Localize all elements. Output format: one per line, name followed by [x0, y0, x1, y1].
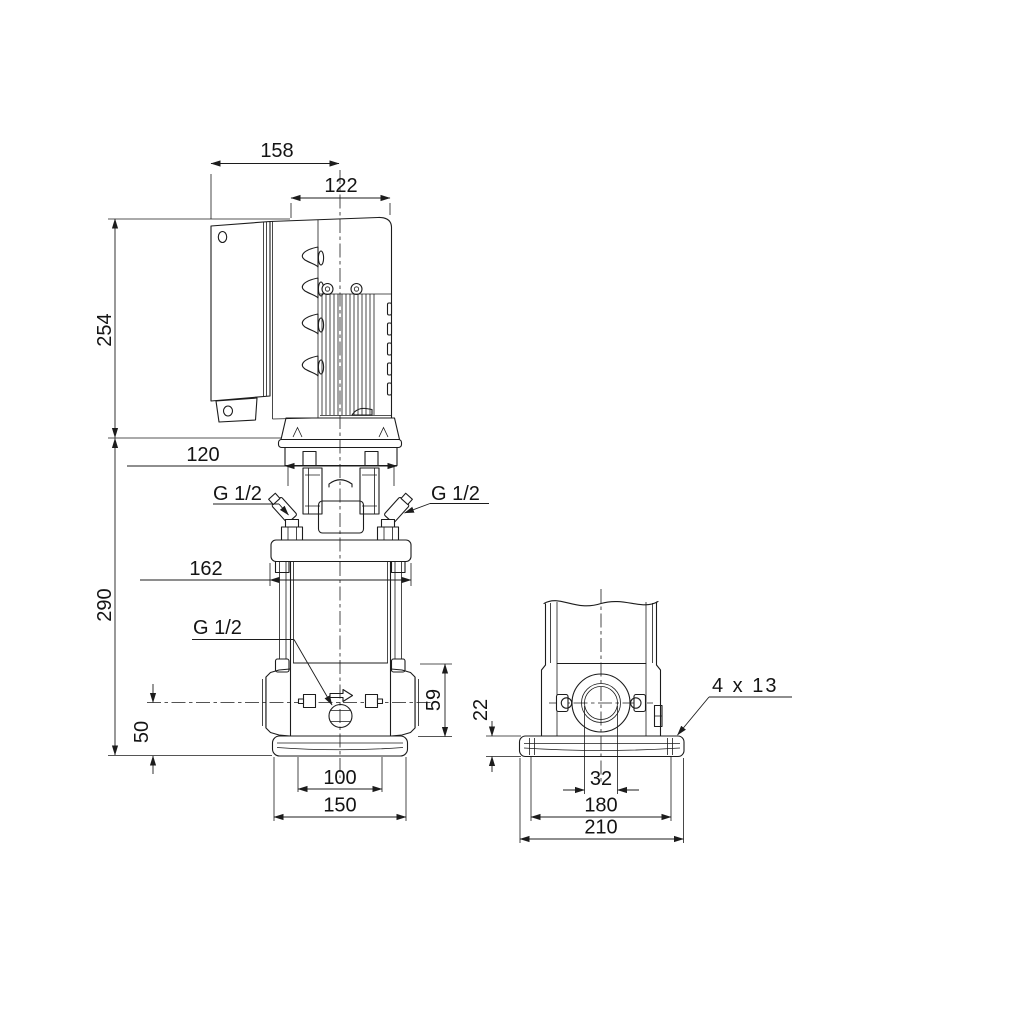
dim-120-label: 120 — [186, 444, 219, 466]
dim-22-label: 22 — [470, 699, 492, 721]
vent-right-label: G 1/2 — [431, 483, 480, 505]
side-base-plate — [520, 736, 685, 757]
dim-150-label: 150 — [323, 795, 356, 817]
pump-head-flange — [271, 540, 411, 562]
motor-stool — [285, 448, 397, 534]
coupling-guard-left — [303, 468, 322, 514]
control-box — [211, 222, 270, 423]
coupling-guard-right — [360, 468, 379, 514]
head-hex-plug-right — [378, 520, 399, 541]
bolt-holes-label: 4 x 13 — [712, 675, 778, 697]
dim-122-label: 122 — [324, 175, 357, 197]
dim-254-label: 254 — [94, 313, 116, 346]
motor-cover-ribs — [302, 247, 323, 376]
dim-50-label: 50 — [131, 721, 153, 743]
dim-210-label: 210 — [584, 817, 617, 839]
dim-162-label: 162 — [189, 558, 222, 580]
gauge-plug-left — [299, 695, 316, 708]
flow-direction-arrow — [330, 690, 353, 702]
dim-180-label: 180 — [584, 795, 617, 817]
dim-290-label: 290 — [94, 588, 116, 621]
dim-100-label: 100 — [323, 767, 356, 789]
dim-32-label: 32 — [590, 768, 612, 790]
drain-plug — [329, 705, 352, 728]
side-chamber — [542, 664, 663, 737]
pump-dimensional-drawing: 158 122 254 290 120 162 59 — [0, 0, 1024, 1024]
gauge-plug-right — [366, 695, 383, 708]
front-view: 158 122 254 290 120 162 59 — [94, 140, 489, 821]
drain-label: G 1/2 — [193, 617, 242, 639]
motor — [270, 217, 402, 447]
dim-158-label: 158 — [260, 140, 293, 162]
motor-fins — [320, 294, 392, 416]
shaft-coupling-top — [329, 480, 352, 487]
front-dimensions: 158 122 254 290 120 162 59 — [94, 140, 489, 821]
technical-drawing-page: 158 122 254 290 120 162 59 — [0, 0, 1024, 1024]
vent-left-label: G 1/2 — [213, 483, 262, 505]
side-view: 22 32 180 210 4 x 13 — [470, 589, 792, 843]
vent-plug-right — [384, 492, 414, 523]
nameplate — [319, 501, 364, 533]
motor-screws — [322, 284, 362, 295]
head-hex-plug-left — [282, 520, 303, 541]
dim-59-label: 59 — [423, 689, 445, 711]
